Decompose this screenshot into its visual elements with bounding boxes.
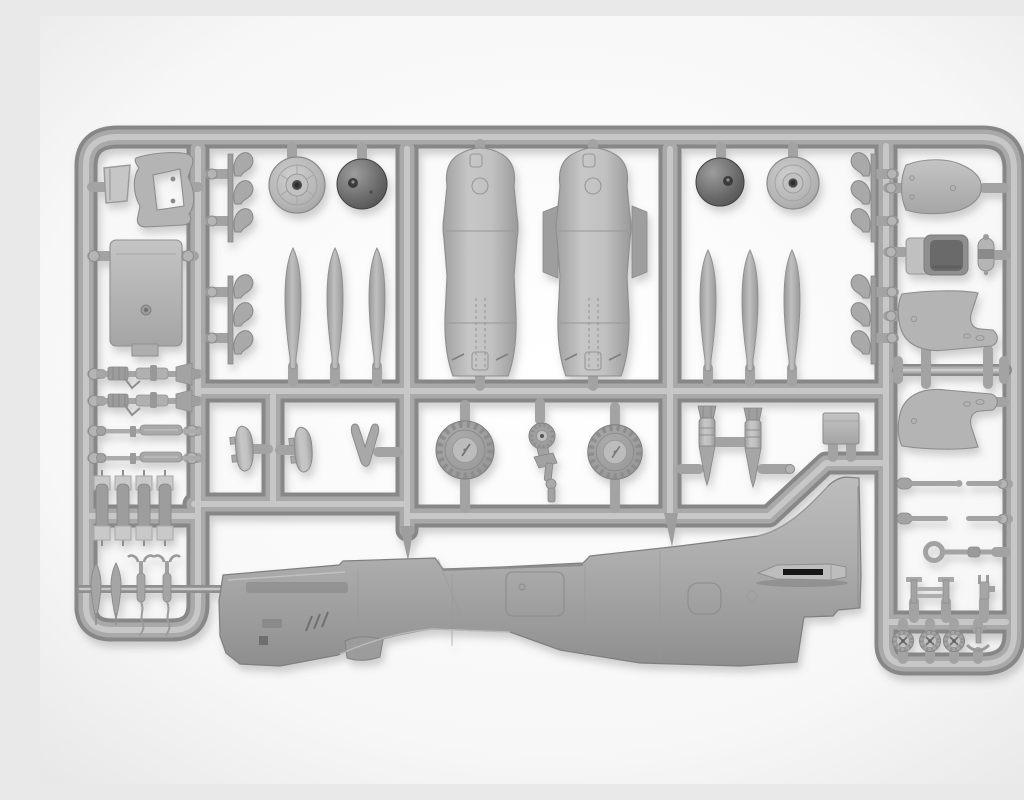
part-pilot-seat bbox=[906, 235, 968, 275]
part-oxygen-bottle bbox=[978, 234, 994, 275]
black-marking bbox=[783, 569, 823, 575]
part-pulley-wheels bbox=[893, 631, 965, 652]
model-kit-sprue-photo: Gray injection-molded model aircraft kit… bbox=[40, 16, 1024, 784]
part-mount-triangle bbox=[104, 165, 130, 203]
part-spinner-backplate-left bbox=[269, 157, 325, 213]
part-main-wheel-right bbox=[588, 425, 643, 480]
part-spinner-dome-right bbox=[696, 158, 744, 206]
part-cowling-half-left bbox=[443, 148, 518, 376]
part-spinner-dome-left bbox=[337, 159, 387, 209]
part-bulkhead-panel bbox=[110, 240, 182, 356]
part-main-wheel-left bbox=[436, 421, 494, 479]
part-spinner-backplate-right bbox=[767, 157, 819, 209]
part-equipment-box bbox=[823, 413, 859, 444]
sprue-illustration: Plastic parts frame (sprue) of a piston-… bbox=[40, 16, 1024, 784]
